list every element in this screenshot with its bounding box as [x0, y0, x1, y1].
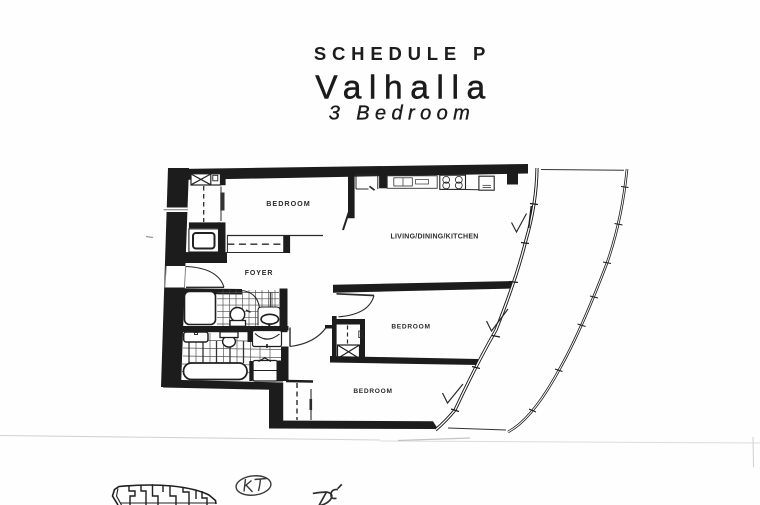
- svg-text:3 Bedroom: 3 Bedroom: [329, 103, 475, 125]
- svg-text:Valhalla: Valhalla: [315, 70, 493, 107]
- svg-text:BEDROOM: BEDROOM: [266, 199, 311, 208]
- svg-text:BEDROOM: BEDROOM: [353, 388, 392, 395]
- svg-text:FOYER: FOYER: [245, 270, 274, 277]
- svg-text:BEDROOM: BEDROOM: [391, 324, 430, 331]
- svg-text:LIVING/DINING/KITCHEN: LIVING/DINING/KITCHEN: [390, 233, 478, 240]
- svg-text:SCHEDULE P: SCHEDULE P: [314, 43, 491, 64]
